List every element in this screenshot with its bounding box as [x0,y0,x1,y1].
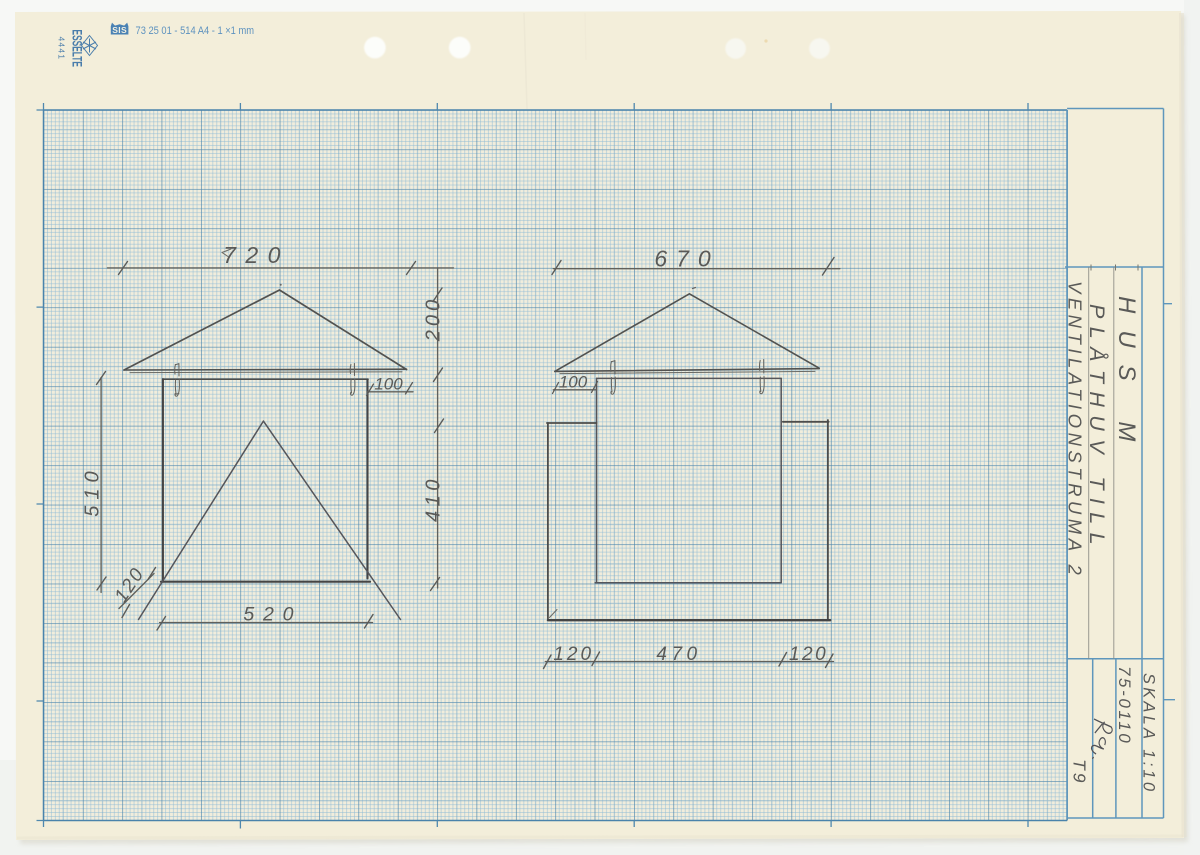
svg-text:120: 120 [553,644,594,665]
svg-text:73 25 01 - 514 A4 - 1 ×1 mm: 73 25 01 - 514 A4 - 1 ×1 mm [136,25,255,37]
svg-text:100: 100 [374,375,403,394]
svg-text:ESSELTE: ESSELTE [69,30,83,68]
svg-text:4441: 4441 [57,37,67,61]
svg-text:520: 520 [243,604,302,626]
svg-text:410: 410 [423,475,445,522]
svg-text:200: 200 [423,296,445,342]
svg-text:120: 120 [789,644,828,665]
svg-text:720: 720 [223,242,290,268]
svg-text:VENTILATIONSTRUMA 2: VENTILATIONSTRUMA 2 [1064,281,1085,579]
svg-text:670: 670 [654,246,719,272]
svg-text:HUS M: HUS M [1113,296,1140,458]
svg-text:PLÅTHUV TILL: PLÅTHUV TILL [1085,304,1109,553]
svg-text:SKALA 1:10: SKALA 1:10 [1140,673,1158,794]
svg-text:100: 100 [559,373,588,392]
svg-text:75-0110: 75-0110 [1115,666,1134,745]
svg-text:470: 470 [656,644,701,665]
svg-text:510: 510 [82,465,104,516]
svg-text:T9: T9 [1070,759,1090,785]
svg-text:SIS: SIS [112,25,127,35]
